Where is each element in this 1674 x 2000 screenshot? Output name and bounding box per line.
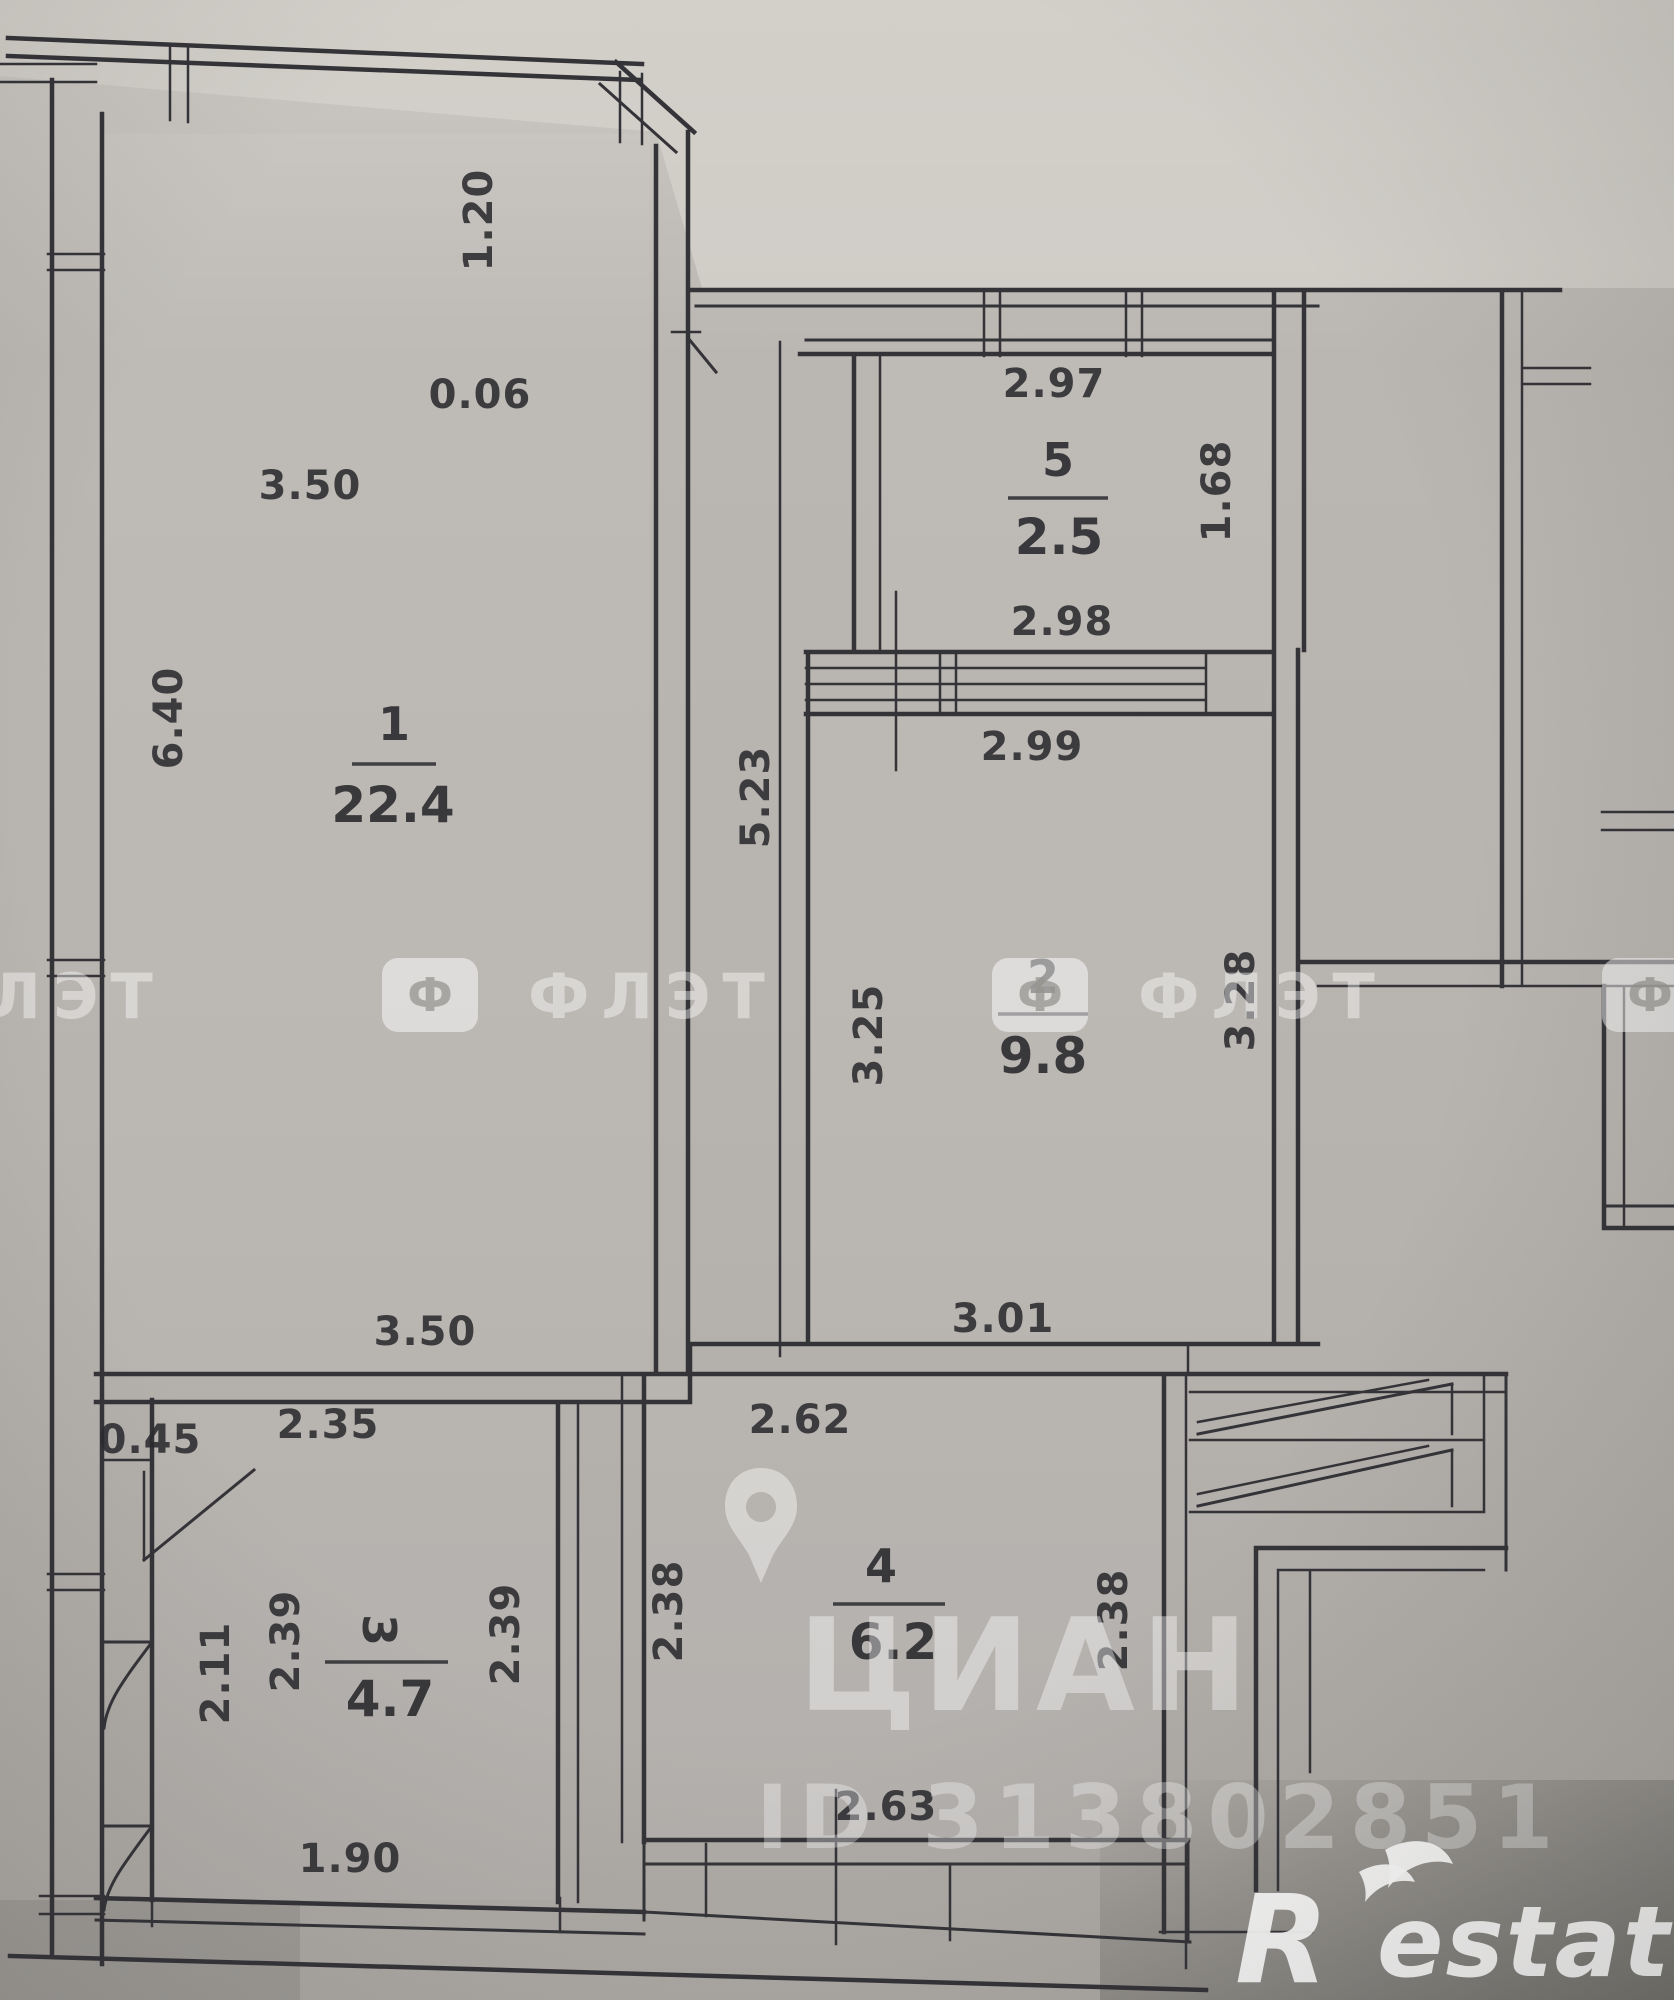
dimension-label: 0.06	[429, 372, 532, 418]
room-area: 2.5	[1015, 508, 1104, 566]
flat-watermark: ФФЛЭТ	[992, 958, 1387, 1033]
flat-watermark-text: ФЛЭТ	[0, 960, 165, 1033]
room-area: 4.7	[346, 1670, 435, 1728]
dimension-label: 2.38	[646, 1560, 692, 1663]
flat-watermark: ФФЛЭТ	[0, 958, 165, 1033]
flat-watermark-text: ФЛЭТ	[528, 960, 777, 1033]
room-number: 5	[1042, 433, 1074, 487]
dimension-label: 3.01	[952, 1296, 1055, 1342]
flat-watermark-text: ФЛЭТ	[1138, 960, 1387, 1033]
dimension-label: 2.62	[749, 1397, 852, 1443]
flat-watermark-icon-letter: Ф	[1627, 968, 1673, 1022]
dimension-label: 2.39	[483, 1583, 529, 1686]
dimension-label: 2.11	[193, 1622, 239, 1725]
dimension-label: 3.50	[259, 463, 362, 509]
dimension-label: 0.45	[99, 1417, 202, 1463]
room-number: 1	[378, 697, 410, 751]
flat-watermark-icon-letter: Ф	[407, 968, 453, 1022]
dimension-label: 2.35	[277, 1402, 380, 1448]
room-area: 22.4	[331, 776, 454, 834]
dimension-label: 2.98	[1011, 599, 1114, 645]
room-number: 3	[352, 1614, 406, 1646]
cian-watermark-text: ЦИАН	[798, 1592, 1254, 1741]
dimension-label: 2.39	[263, 1590, 309, 1693]
restate-logo-r: R	[1235, 1869, 1329, 2000]
flat-watermark-icon-letter: Ф	[1017, 968, 1063, 1022]
floorplan-photo: 3.501.200.066.405.232.971.682.982.993.25…	[0, 0, 1674, 2000]
room-area: 9.8	[999, 1027, 1088, 1085]
dimension-label: 3.50	[374, 1309, 477, 1355]
dimension-label: 5.23	[733, 746, 779, 849]
room-number: 4	[865, 1539, 897, 1593]
dimension-label: 1.20	[456, 169, 502, 272]
dimension-label: 2.99	[981, 724, 1084, 770]
flat-watermark: ФФЛЭТ	[382, 958, 777, 1033]
flat-watermark: ФФЛЭТ	[1602, 958, 1674, 1033]
dimension-label: 6.40	[146, 667, 192, 770]
restate-logo-estate: estate	[1377, 1886, 1674, 2000]
dimension-label: 2.97	[1003, 361, 1106, 407]
dimension-label: 1.90	[299, 1836, 402, 1882]
dimension-label: 1.68	[1194, 440, 1240, 543]
dimension-label: 3.25	[846, 984, 892, 1087]
